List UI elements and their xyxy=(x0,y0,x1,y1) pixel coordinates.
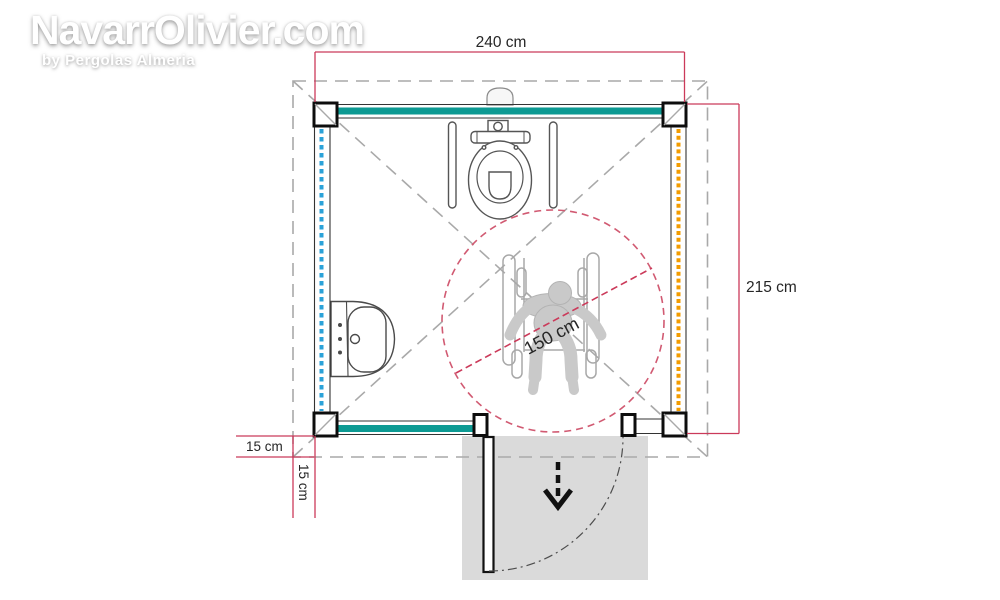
grab-bar-left xyxy=(449,122,457,208)
wheel-left xyxy=(503,255,515,365)
toilet-hinge-right xyxy=(514,146,518,150)
grab-bar-right xyxy=(550,122,558,208)
wall-top-teal-beam xyxy=(337,108,663,115)
person-foot-left xyxy=(533,376,535,390)
person-foot-right xyxy=(572,376,574,390)
door-post-left xyxy=(474,415,487,436)
washbasin-dot-1 xyxy=(338,323,342,327)
person-head xyxy=(549,282,572,305)
door-leaf xyxy=(484,437,494,572)
dim-15v-label: 15 cm xyxy=(246,439,283,454)
door-post-right xyxy=(622,415,635,436)
toilet-tank-dome xyxy=(487,88,513,105)
person-arm-left xyxy=(510,307,531,335)
toilet-drain xyxy=(489,172,511,199)
wall-bottom-teal-beam xyxy=(337,425,474,432)
dimension-215 xyxy=(687,104,739,434)
dim-240-label: 240 cm xyxy=(476,34,527,51)
washbasin-faucet xyxy=(351,335,360,344)
wheel-right xyxy=(587,253,599,363)
toilet-hinge-left xyxy=(482,146,486,150)
accessible-wc-floor-plan: NavarrOlivier.com by Pergolas Almeria xyxy=(0,0,1000,600)
toilet-flush-button xyxy=(494,122,502,130)
washbasin-dot-2 xyxy=(338,337,342,341)
dim-15h-label: 15 cm xyxy=(296,464,311,501)
floor-plan-drawing: 150 cm xyxy=(0,0,1000,600)
washbasin-dot-3 xyxy=(338,351,342,355)
turning-circle: 150 cm xyxy=(442,210,664,432)
wheelchair-user xyxy=(503,253,601,390)
washbasin xyxy=(331,302,395,377)
dim-215-label: 215 cm xyxy=(746,279,797,296)
handrim-right xyxy=(578,268,587,297)
